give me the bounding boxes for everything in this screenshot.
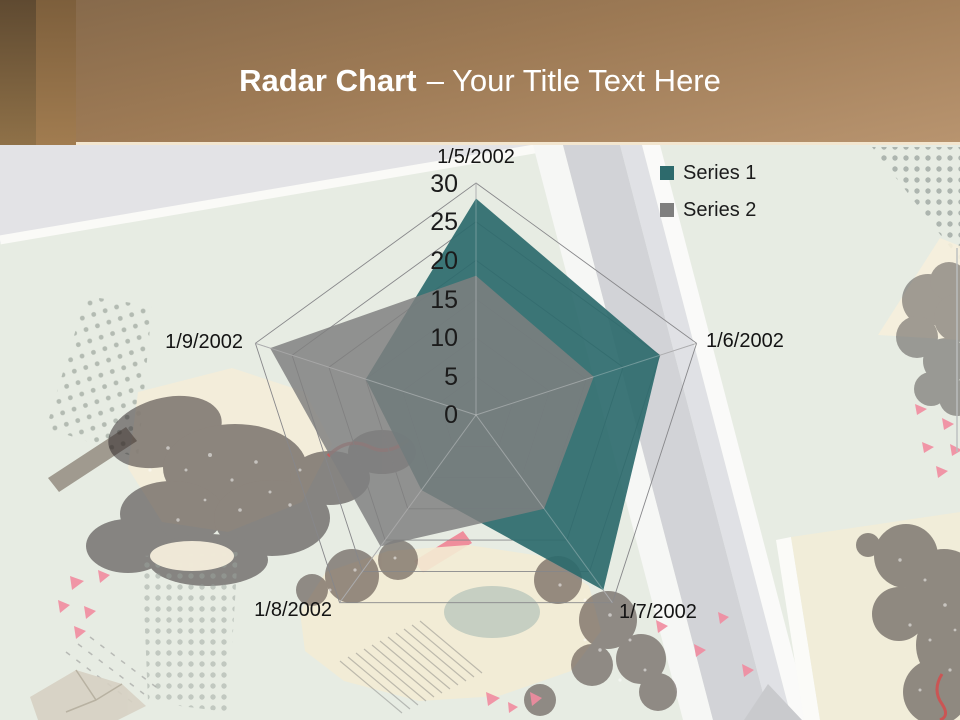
- slide-title-bold: Radar Chart: [239, 63, 416, 98]
- slide-title-rest: – Your Title Text Here: [427, 63, 721, 98]
- presentation-slide: 30 25 20 15 10 5 0 1/5/2002 1/6/2002 1/7…: [0, 0, 960, 720]
- slide-title: Radar Chart– Your Title Text Here: [0, 62, 960, 100]
- header-bar: Radar Chart– Your Title Text Here: [0, 0, 960, 145]
